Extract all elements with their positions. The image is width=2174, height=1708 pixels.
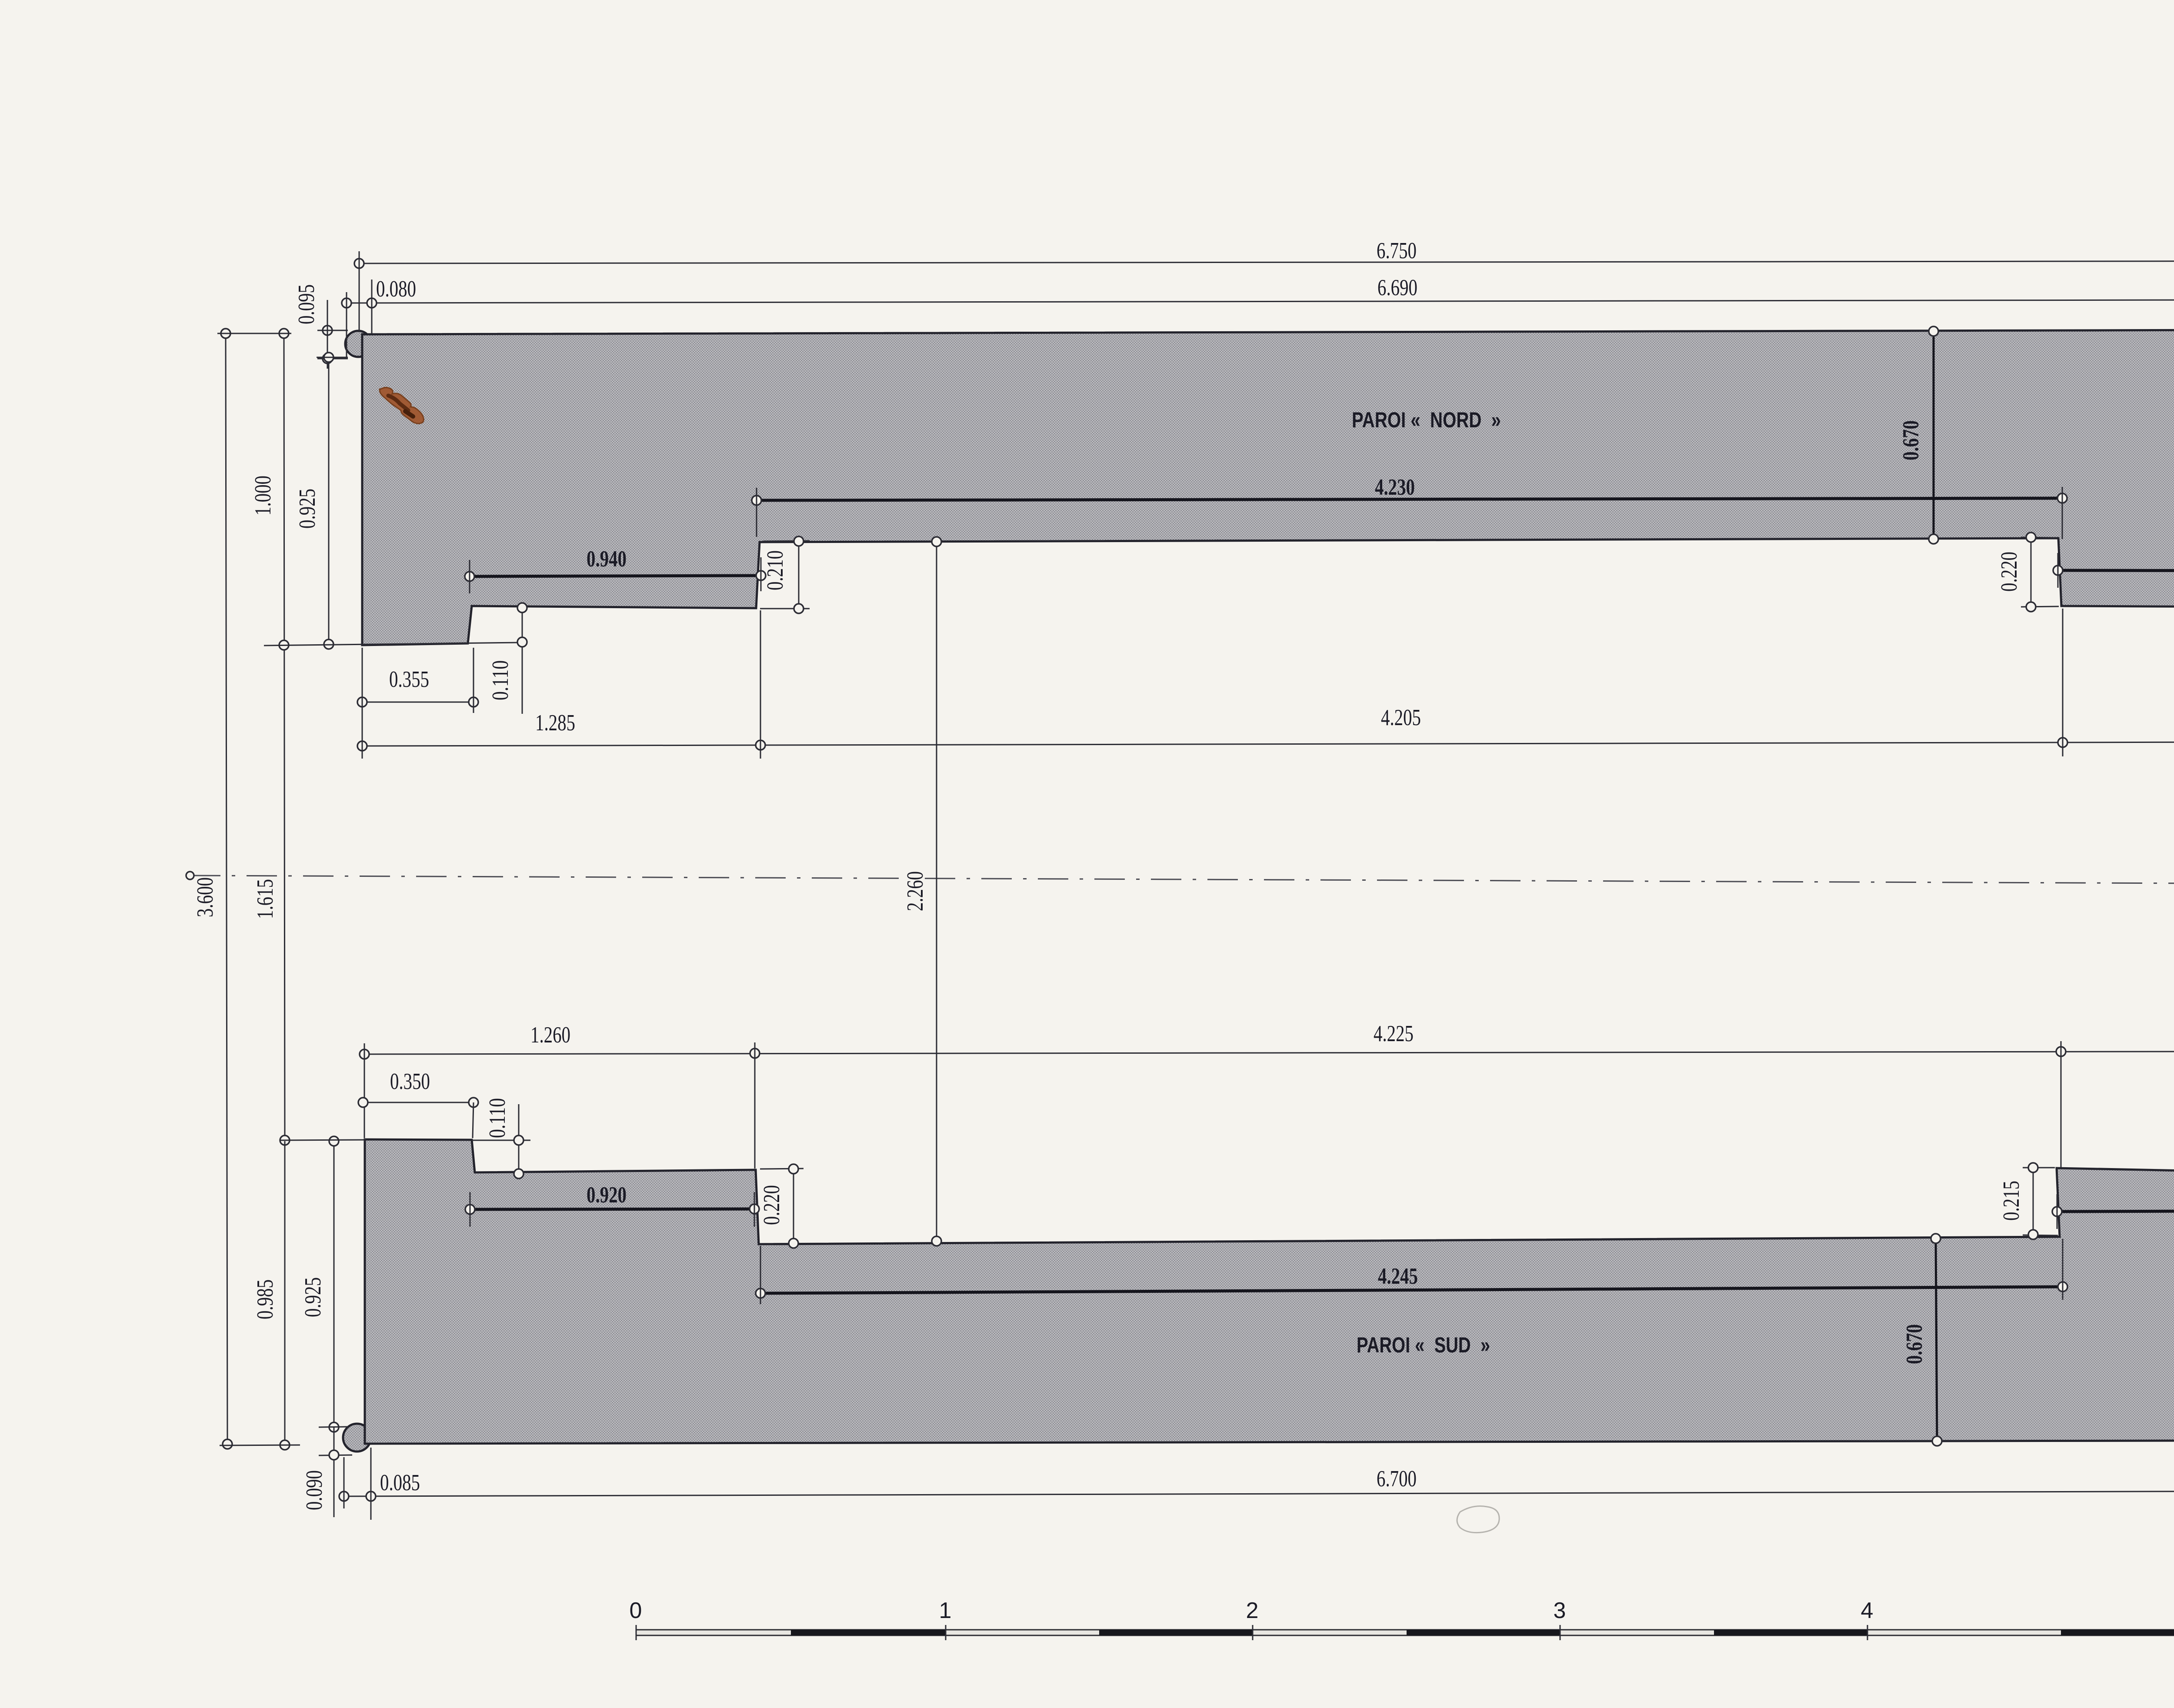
svg-text:4.225: 4.225 <box>1374 1021 1414 1046</box>
svg-text:4.205: 4.205 <box>1381 705 1421 730</box>
svg-text:0.110: 0.110 <box>488 660 513 700</box>
svg-text:1.285: 1.285 <box>535 710 575 736</box>
svg-text:0.985: 0.985 <box>253 1279 278 1319</box>
svg-text:0.670: 0.670 <box>1902 1324 1927 1364</box>
svg-text:0.925: 0.925 <box>300 1277 326 1317</box>
svg-text:4: 4 <box>1861 1598 1874 1623</box>
svg-text:1: 1 <box>939 1598 952 1623</box>
svg-text:3.600: 3.600 <box>193 877 218 917</box>
svg-text:1.000: 1.000 <box>250 476 276 516</box>
svg-text:4.245: 4.245 <box>1378 1264 1418 1289</box>
svg-text:0.670: 0.670 <box>1898 420 1924 460</box>
svg-text:0.220: 0.220 <box>759 1185 784 1225</box>
svg-text:0: 0 <box>630 1598 642 1623</box>
svg-text:PAROI « SUD »: PAROI « SUD » <box>1357 1333 1490 1357</box>
svg-text:0.080: 0.080 <box>376 276 416 302</box>
svg-text:4.230: 4.230 <box>1375 475 1415 500</box>
svg-text:0.090: 0.090 <box>302 1470 327 1510</box>
svg-text:0.095: 0.095 <box>294 284 319 324</box>
svg-text:0.210: 0.210 <box>763 550 788 590</box>
svg-text:0.355: 0.355 <box>389 667 429 692</box>
svg-text:0.940: 0.940 <box>587 546 627 572</box>
svg-text:6.690: 6.690 <box>1377 275 1417 300</box>
svg-text:0.350: 0.350 <box>390 1069 430 1094</box>
svg-text:3: 3 <box>1554 1598 1566 1623</box>
svg-text:6.750: 6.750 <box>1377 238 1417 263</box>
svg-text:2.260: 2.260 <box>903 871 928 911</box>
svg-text:PAROI « NORD »: PAROI « NORD » <box>1352 408 1501 432</box>
svg-text:0.220: 0.220 <box>1997 552 2022 592</box>
svg-text:0.920: 0.920 <box>587 1182 627 1208</box>
svg-text:0.085: 0.085 <box>380 1470 420 1495</box>
svg-text:0.215: 0.215 <box>1999 1181 2024 1221</box>
svg-text:0.110: 0.110 <box>485 1098 510 1138</box>
svg-text:6.700: 6.700 <box>1377 1466 1417 1492</box>
svg-text:0.925: 0.925 <box>295 489 320 529</box>
svg-text:1.260: 1.260 <box>530 1022 570 1048</box>
svg-text:1.615: 1.615 <box>253 879 278 919</box>
svg-text:2: 2 <box>1246 1598 1259 1623</box>
